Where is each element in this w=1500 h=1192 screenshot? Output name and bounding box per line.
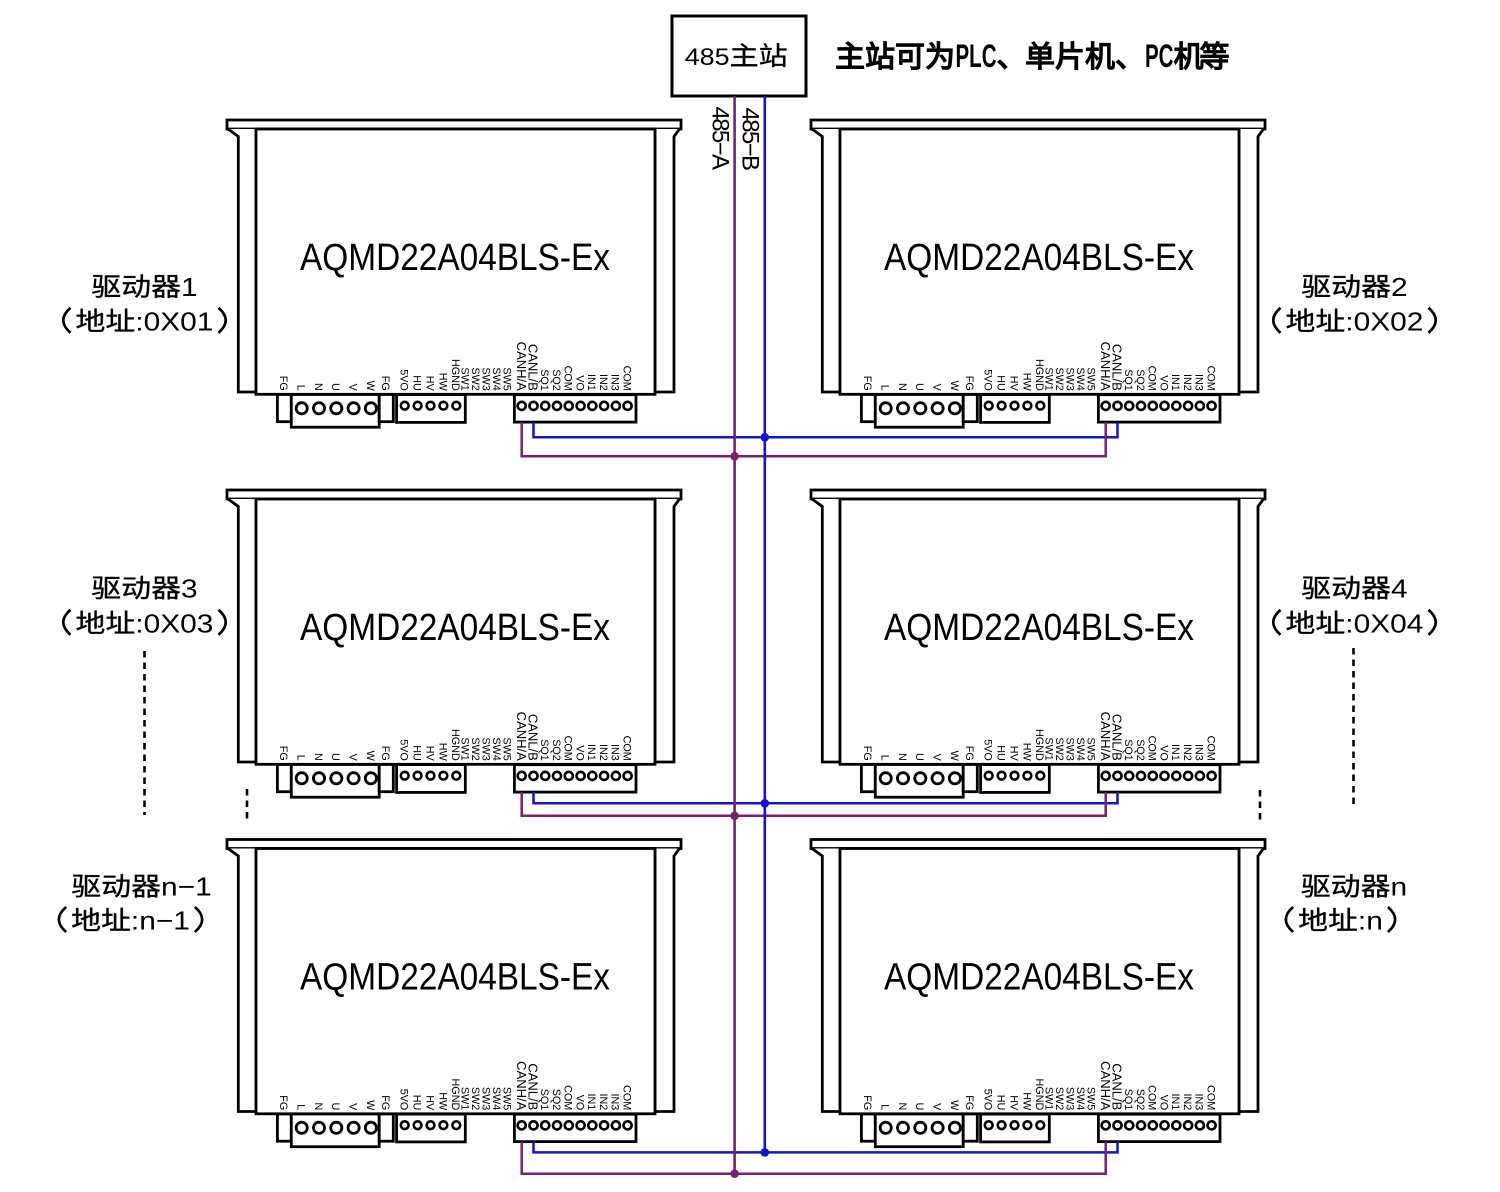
svg-text:485−A: 485−A [707,107,734,171]
svg-text:COM: COM [621,366,633,391]
svg-text:485−B: 485−B [737,108,764,172]
svg-text:W: W [364,751,376,762]
svg-text:V: V [347,1103,359,1111]
svg-text:SW5: SW5 [1085,1087,1097,1110]
svg-text:COM: COM [1146,736,1158,761]
svg-text:V: V [931,1103,943,1111]
svg-text:2: 2 [1391,273,1408,302]
svg-text:VO: VO [1157,745,1169,761]
svg-text:U: U [329,1102,341,1110]
svg-text:HW: HW [436,743,448,762]
svg-text:L: L [295,1104,307,1110]
svg-text:W: W [948,1100,960,1111]
svg-text:HU: HU [995,745,1007,761]
svg-text:AQMD22A04BLS-Ex: AQMD22A04BLS-Ex [300,956,610,998]
svg-text:HV: HV [423,376,435,392]
svg-text::n−1: :n−1 [131,906,190,935]
svg-text:VO: VO [1157,1095,1169,1111]
svg-text:IN2: IN2 [597,744,609,761]
svg-text:FG: FG [379,1095,391,1110]
svg-text:SQ2: SQ2 [550,739,562,761]
svg-text:HV: HV [1007,746,1019,762]
svg-text:5VO: 5VO [398,369,410,391]
svg-text:U: U [913,753,925,761]
svg-text:3: 3 [181,574,198,603]
svg-text:SW1: SW1 [459,367,471,390]
svg-text:5VO: 5VO [398,739,410,761]
svg-text:SW3: SW3 [480,1087,492,1110]
svg-text:HW: HW [1020,1092,1032,1111]
svg-text:COM: COM [1205,736,1217,761]
svg-text:IN3: IN3 [609,1093,621,1110]
svg-text:SW4: SW4 [1074,1087,1086,1110]
svg-text:FG: FG [277,746,289,761]
svg-text:SQ2: SQ2 [550,1089,562,1111]
svg-text:4: 4 [1391,574,1408,603]
svg-text:SW2: SW2 [469,1087,481,1110]
svg-text:SW1: SW1 [1043,367,1055,390]
svg-text:FG: FG [963,1095,975,1110]
svg-text:FG: FG [963,376,975,391]
svg-text:FG: FG [277,376,289,391]
svg-text:SQ2: SQ2 [1134,369,1146,391]
svg-text:FG: FG [861,1095,873,1110]
svg-text:SW2: SW2 [469,367,481,390]
svg-text:FG: FG [861,746,873,761]
svg-text:SW1: SW1 [459,737,471,760]
svg-text:COM: COM [1146,1085,1158,1110]
svg-text:HU: HU [995,1095,1007,1111]
svg-text:HU: HU [995,375,1007,391]
svg-text:IN1: IN1 [585,374,597,391]
svg-text:SW4: SW4 [1074,367,1086,390]
svg-text:SW2: SW2 [1053,1087,1065,1110]
svg-text:SW5: SW5 [501,1087,513,1110]
svg-text:SQ1: SQ1 [538,1089,550,1111]
svg-text:SW5: SW5 [1085,367,1097,390]
svg-text:SW3: SW3 [1064,1087,1076,1110]
svg-text:FG: FG [379,746,391,761]
svg-text:V: V [931,384,943,392]
svg-text:COM: COM [562,1085,574,1110]
svg-text:HV: HV [423,746,435,762]
svg-text:L: L [295,385,307,391]
svg-text:5VO: 5VO [398,1089,410,1111]
svg-text:IN3: IN3 [609,374,621,391]
svg-text:V: V [347,754,359,762]
svg-text:1: 1 [181,273,198,302]
svg-text:SW5: SW5 [501,737,513,760]
svg-text:IN2: IN2 [1181,374,1193,391]
svg-text:SW2: SW2 [469,737,481,760]
svg-text:SQ2: SQ2 [1134,1089,1146,1111]
svg-text:IN1: IN1 [585,744,597,761]
svg-text:IN1: IN1 [1169,374,1181,391]
svg-text:SW4: SW4 [490,737,502,760]
svg-text:L: L [879,755,891,761]
svg-text:IN3: IN3 [1193,1093,1205,1110]
svg-text:SW3: SW3 [1064,367,1076,390]
svg-text:SW4: SW4 [490,367,502,390]
svg-text:SW3: SW3 [480,367,492,390]
svg-text:V: V [931,754,943,762]
svg-text:IN2: IN2 [1181,744,1193,761]
svg-text:SW3: SW3 [480,737,492,760]
svg-text:SW2: SW2 [1053,367,1065,390]
svg-text:SW5: SW5 [501,367,513,390]
svg-text::0X04: :0X04 [1345,609,1423,638]
svg-text:FG: FG [963,746,975,761]
svg-text:SQ1: SQ1 [1122,1089,1134,1111]
svg-text:5VO: 5VO [982,369,994,391]
svg-text:HV: HV [1007,376,1019,392]
svg-text:IN2: IN2 [597,1093,609,1110]
svg-text:IN3: IN3 [1193,374,1205,391]
svg-text:IN2: IN2 [1181,1093,1193,1110]
svg-text:COM: COM [1205,1085,1217,1110]
svg-text:HW: HW [436,373,448,392]
svg-text:n: n [1391,872,1408,901]
svg-text:SW1: SW1 [1043,1087,1055,1110]
svg-text:PLC: PLC [956,38,997,74]
svg-text::0X02: :0X02 [1345,307,1423,336]
svg-text:VO: VO [573,1095,585,1111]
svg-text:U: U [329,383,341,391]
svg-text:VO: VO [1157,375,1169,391]
svg-text:PC: PC [1145,38,1174,74]
svg-text:HU: HU [411,1095,423,1111]
svg-text:W: W [364,1100,376,1111]
svg-text:VO: VO [573,745,585,761]
svg-text:COM: COM [1146,366,1158,391]
svg-text:SW2: SW2 [1053,737,1065,760]
svg-text:IN3: IN3 [609,744,621,761]
svg-text:SW1: SW1 [459,1087,471,1110]
svg-text:SQ1: SQ1 [1122,369,1134,391]
svg-text:HW: HW [436,1092,448,1111]
svg-text:FG: FG [861,376,873,391]
svg-text:N: N [312,1102,324,1110]
svg-text:V: V [347,384,359,392]
svg-text:COM: COM [1205,366,1217,391]
svg-text:W: W [948,381,960,392]
svg-text:VO: VO [573,375,585,391]
svg-text:HW: HW [1020,373,1032,392]
svg-text:SQ2: SQ2 [550,369,562,391]
svg-text:HU: HU [411,745,423,761]
svg-text:N: N [896,383,908,391]
svg-text:N: N [896,753,908,761]
svg-text:AQMD22A04BLS-Ex: AQMD22A04BLS-Ex [884,956,1194,998]
svg-text:L: L [295,755,307,761]
svg-text:SW1: SW1 [1043,737,1055,760]
svg-text:N: N [896,1102,908,1110]
svg-text:N: N [312,753,324,761]
svg-text:AQMD22A04BLS-Ex: AQMD22A04BLS-Ex [884,607,1194,649]
svg-text:COM: COM [562,366,574,391]
svg-text:AQMD22A04BLS-Ex: AQMD22A04BLS-Ex [300,607,610,649]
svg-text:IN1: IN1 [1169,1093,1181,1110]
svg-text:SW4: SW4 [490,1087,502,1110]
svg-text:HW: HW [1020,743,1032,762]
svg-text:SQ1: SQ1 [1122,739,1134,761]
svg-text:IN3: IN3 [1193,744,1205,761]
svg-text:SQ1: SQ1 [538,739,550,761]
svg-text:N: N [312,383,324,391]
svg-text::0X01: :0X01 [135,307,213,336]
svg-text:IN2: IN2 [597,374,609,391]
svg-text:HV: HV [423,1095,435,1111]
svg-text:485: 485 [685,44,730,70]
svg-text:SW5: SW5 [1085,737,1097,760]
svg-text:L: L [879,1104,891,1110]
svg-text:COM: COM [621,1085,633,1110]
svg-text:W: W [948,751,960,762]
svg-text:FG: FG [379,376,391,391]
svg-text::0X03: :0X03 [135,609,213,638]
svg-text:HU: HU [411,375,423,391]
svg-text:U: U [913,383,925,391]
svg-text:L: L [879,385,891,391]
svg-text:SW3: SW3 [1064,737,1076,760]
svg-text:U: U [913,1102,925,1110]
svg-text:n−1: n−1 [161,872,212,901]
svg-text::n: :n [1358,906,1383,935]
svg-text:COM: COM [621,736,633,761]
svg-text:5VO: 5VO [982,739,994,761]
svg-text:IN1: IN1 [585,1093,597,1110]
svg-text:HV: HV [1007,1095,1019,1111]
svg-text:U: U [329,753,341,761]
svg-text:W: W [364,381,376,392]
svg-text:SW4: SW4 [1074,737,1086,760]
svg-text:FG: FG [277,1095,289,1110]
svg-text:COM: COM [562,736,574,761]
svg-text:SQ1: SQ1 [538,369,550,391]
svg-text:IN1: IN1 [1169,744,1181,761]
svg-text:5VO: 5VO [982,1089,994,1111]
svg-text:SQ2: SQ2 [1134,739,1146,761]
svg-text:AQMD22A04BLS-Ex: AQMD22A04BLS-Ex [300,237,610,279]
svg-text:AQMD22A04BLS-Ex: AQMD22A04BLS-Ex [884,237,1194,279]
